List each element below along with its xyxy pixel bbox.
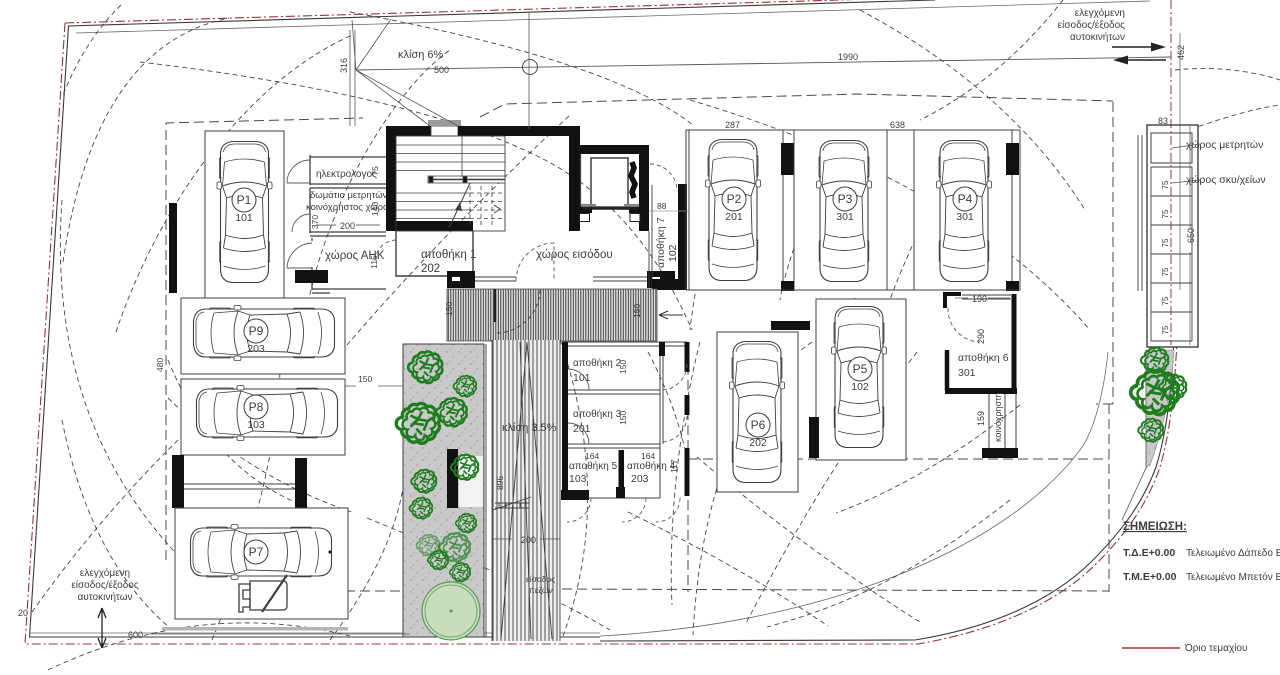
svg-text:20: 20: [18, 608, 28, 618]
svg-text:203: 203: [631, 473, 649, 485]
svg-text:1990: 1990: [838, 52, 858, 62]
svg-text:ελεγχόμενη: ελεγχόμενη: [80, 567, 130, 579]
svg-text:Τελειωμένο Δάπεδο Επιπ: Τελειωμένο Δάπεδο Επιπ: [1186, 547, 1280, 559]
svg-text:Τ.Μ.Ε+0.00: Τ.Μ.Ε+0.00: [1123, 571, 1177, 583]
svg-text:200: 200: [340, 221, 355, 231]
svg-text:Τ.Δ.Ε+0.00: Τ.Δ.Ε+0.00: [1123, 547, 1175, 559]
svg-text:895: 895: [495, 476, 505, 490]
svg-text:ΣΗΜΕΙΩΣΗ:: ΣΗΜΕΙΩΣΗ:: [1123, 521, 1187, 533]
svg-text:103: 103: [247, 419, 265, 431]
svg-text:κοινόχρηστη: κοινόχρηστη: [993, 392, 1003, 442]
svg-text:102: 102: [667, 244, 679, 262]
svg-text:P6: P6: [751, 418, 766, 432]
svg-text:δωμάτιο μετρητών/: δωμάτιο μετρητών/: [310, 190, 390, 201]
svg-text:101: 101: [235, 212, 253, 224]
svg-text:P9: P9: [249, 324, 264, 338]
svg-text:638: 638: [890, 120, 905, 130]
svg-text:290: 290: [976, 329, 986, 344]
svg-text:αποθήκη 5: αποθήκη 5: [569, 460, 618, 472]
svg-text:P5: P5: [853, 362, 868, 376]
svg-text:αποθήκη 1: αποθήκη 1: [421, 249, 476, 261]
svg-text:164: 164: [585, 451, 599, 461]
svg-text:Όριο τεμαχίου: Όριο τεμαχίου: [1184, 642, 1247, 654]
svg-text:83: 83: [1158, 116, 1168, 126]
svg-text:P4: P4: [958, 192, 973, 206]
svg-text:115: 115: [369, 255, 379, 269]
svg-text:203: 203: [247, 343, 265, 355]
svg-text:P8: P8: [249, 400, 264, 414]
svg-text:75: 75: [370, 166, 380, 176]
svg-text:202: 202: [421, 263, 440, 275]
svg-text:103: 103: [569, 473, 587, 485]
svg-text:είσοδος: είσοδος: [526, 574, 555, 584]
svg-text:αυτοκινήτων: αυτοκινήτων: [1070, 31, 1125, 43]
svg-text:είσοδος/έξοδος: είσοδος/έξοδος: [1058, 19, 1125, 31]
svg-text:P2: P2: [727, 192, 742, 206]
svg-text:αποθήκη 6: αποθήκη 6: [958, 352, 1009, 364]
svg-text:αυτοκινήτων: αυτοκινήτων: [77, 591, 132, 603]
svg-text:75: 75: [1161, 325, 1170, 334]
svg-text:P1: P1: [237, 193, 252, 207]
svg-text:140: 140: [370, 202, 380, 216]
svg-text:κλίση 6%: κλίση 6%: [398, 49, 444, 61]
svg-text:75: 75: [1161, 209, 1170, 218]
svg-text:370: 370: [310, 215, 320, 229]
svg-text:ελεγχόμενη: ελεγχόμενη: [1075, 7, 1125, 19]
svg-text:150: 150: [444, 302, 454, 316]
svg-text:316: 316: [339, 58, 349, 73]
svg-text:650: 650: [1186, 228, 1196, 243]
svg-text:201: 201: [725, 211, 743, 223]
svg-text:301: 301: [836, 211, 854, 223]
svg-text:480: 480: [155, 358, 165, 372]
svg-text:P7: P7: [249, 545, 264, 559]
svg-text:χώρος σκυ/χείων: χώρος σκυ/χείων: [1186, 174, 1266, 186]
svg-text:P3: P3: [838, 192, 853, 206]
svg-text:πεζών: πεζών: [529, 585, 553, 595]
svg-text:190: 190: [972, 294, 987, 304]
svg-text:102: 102: [851, 381, 869, 393]
svg-text:200: 200: [521, 535, 536, 545]
svg-text:150: 150: [618, 411, 628, 425]
svg-text:150: 150: [632, 304, 642, 318]
svg-text:88: 88: [657, 201, 667, 211]
svg-text:χώρος εισόδου: χώρος εισόδου: [536, 249, 613, 261]
svg-text:159: 159: [976, 411, 986, 426]
svg-text:είσοδος/έξοδος: είσοδος/έξοδος: [71, 579, 138, 591]
svg-text:202: 202: [749, 437, 767, 449]
svg-text:150: 150: [358, 374, 372, 384]
svg-text:αποθήκη 2: αποθήκη 2: [573, 357, 622, 369]
svg-text:164: 164: [641, 451, 655, 461]
svg-text:Τελειωμένο Μπετόν Επιπ: Τελειωμένο Μπετόν Επιπ: [1186, 571, 1280, 583]
svg-text:500: 500: [434, 65, 449, 75]
svg-text:301: 301: [958, 367, 976, 379]
svg-text:75: 75: [1161, 238, 1170, 247]
svg-text:κοινόχρηστος χώρος: κοινόχρηστος χώρος: [306, 202, 393, 213]
svg-text:287: 287: [725, 120, 740, 130]
svg-text:301: 301: [956, 211, 974, 223]
svg-text:αποθήκη 3: αποθήκη 3: [573, 408, 622, 420]
svg-text:χώρος μετρητών: χώρος μετρητών: [1186, 139, 1263, 151]
svg-text:αποθήκη 7: αποθήκη 7: [655, 217, 667, 268]
svg-text:462: 462: [1176, 45, 1186, 60]
svg-text:150: 150: [618, 360, 628, 374]
svg-text:75: 75: [1161, 180, 1170, 189]
svg-text:117: 117: [669, 459, 679, 473]
svg-text:κλίση 3.5%: κλίση 3.5%: [502, 422, 557, 434]
svg-text:75: 75: [1161, 267, 1170, 276]
svg-text:ηλεκτρολογος: ηλεκτρολογος: [316, 169, 377, 180]
svg-text:75: 75: [1161, 296, 1170, 305]
svg-text:600: 600: [128, 630, 143, 640]
